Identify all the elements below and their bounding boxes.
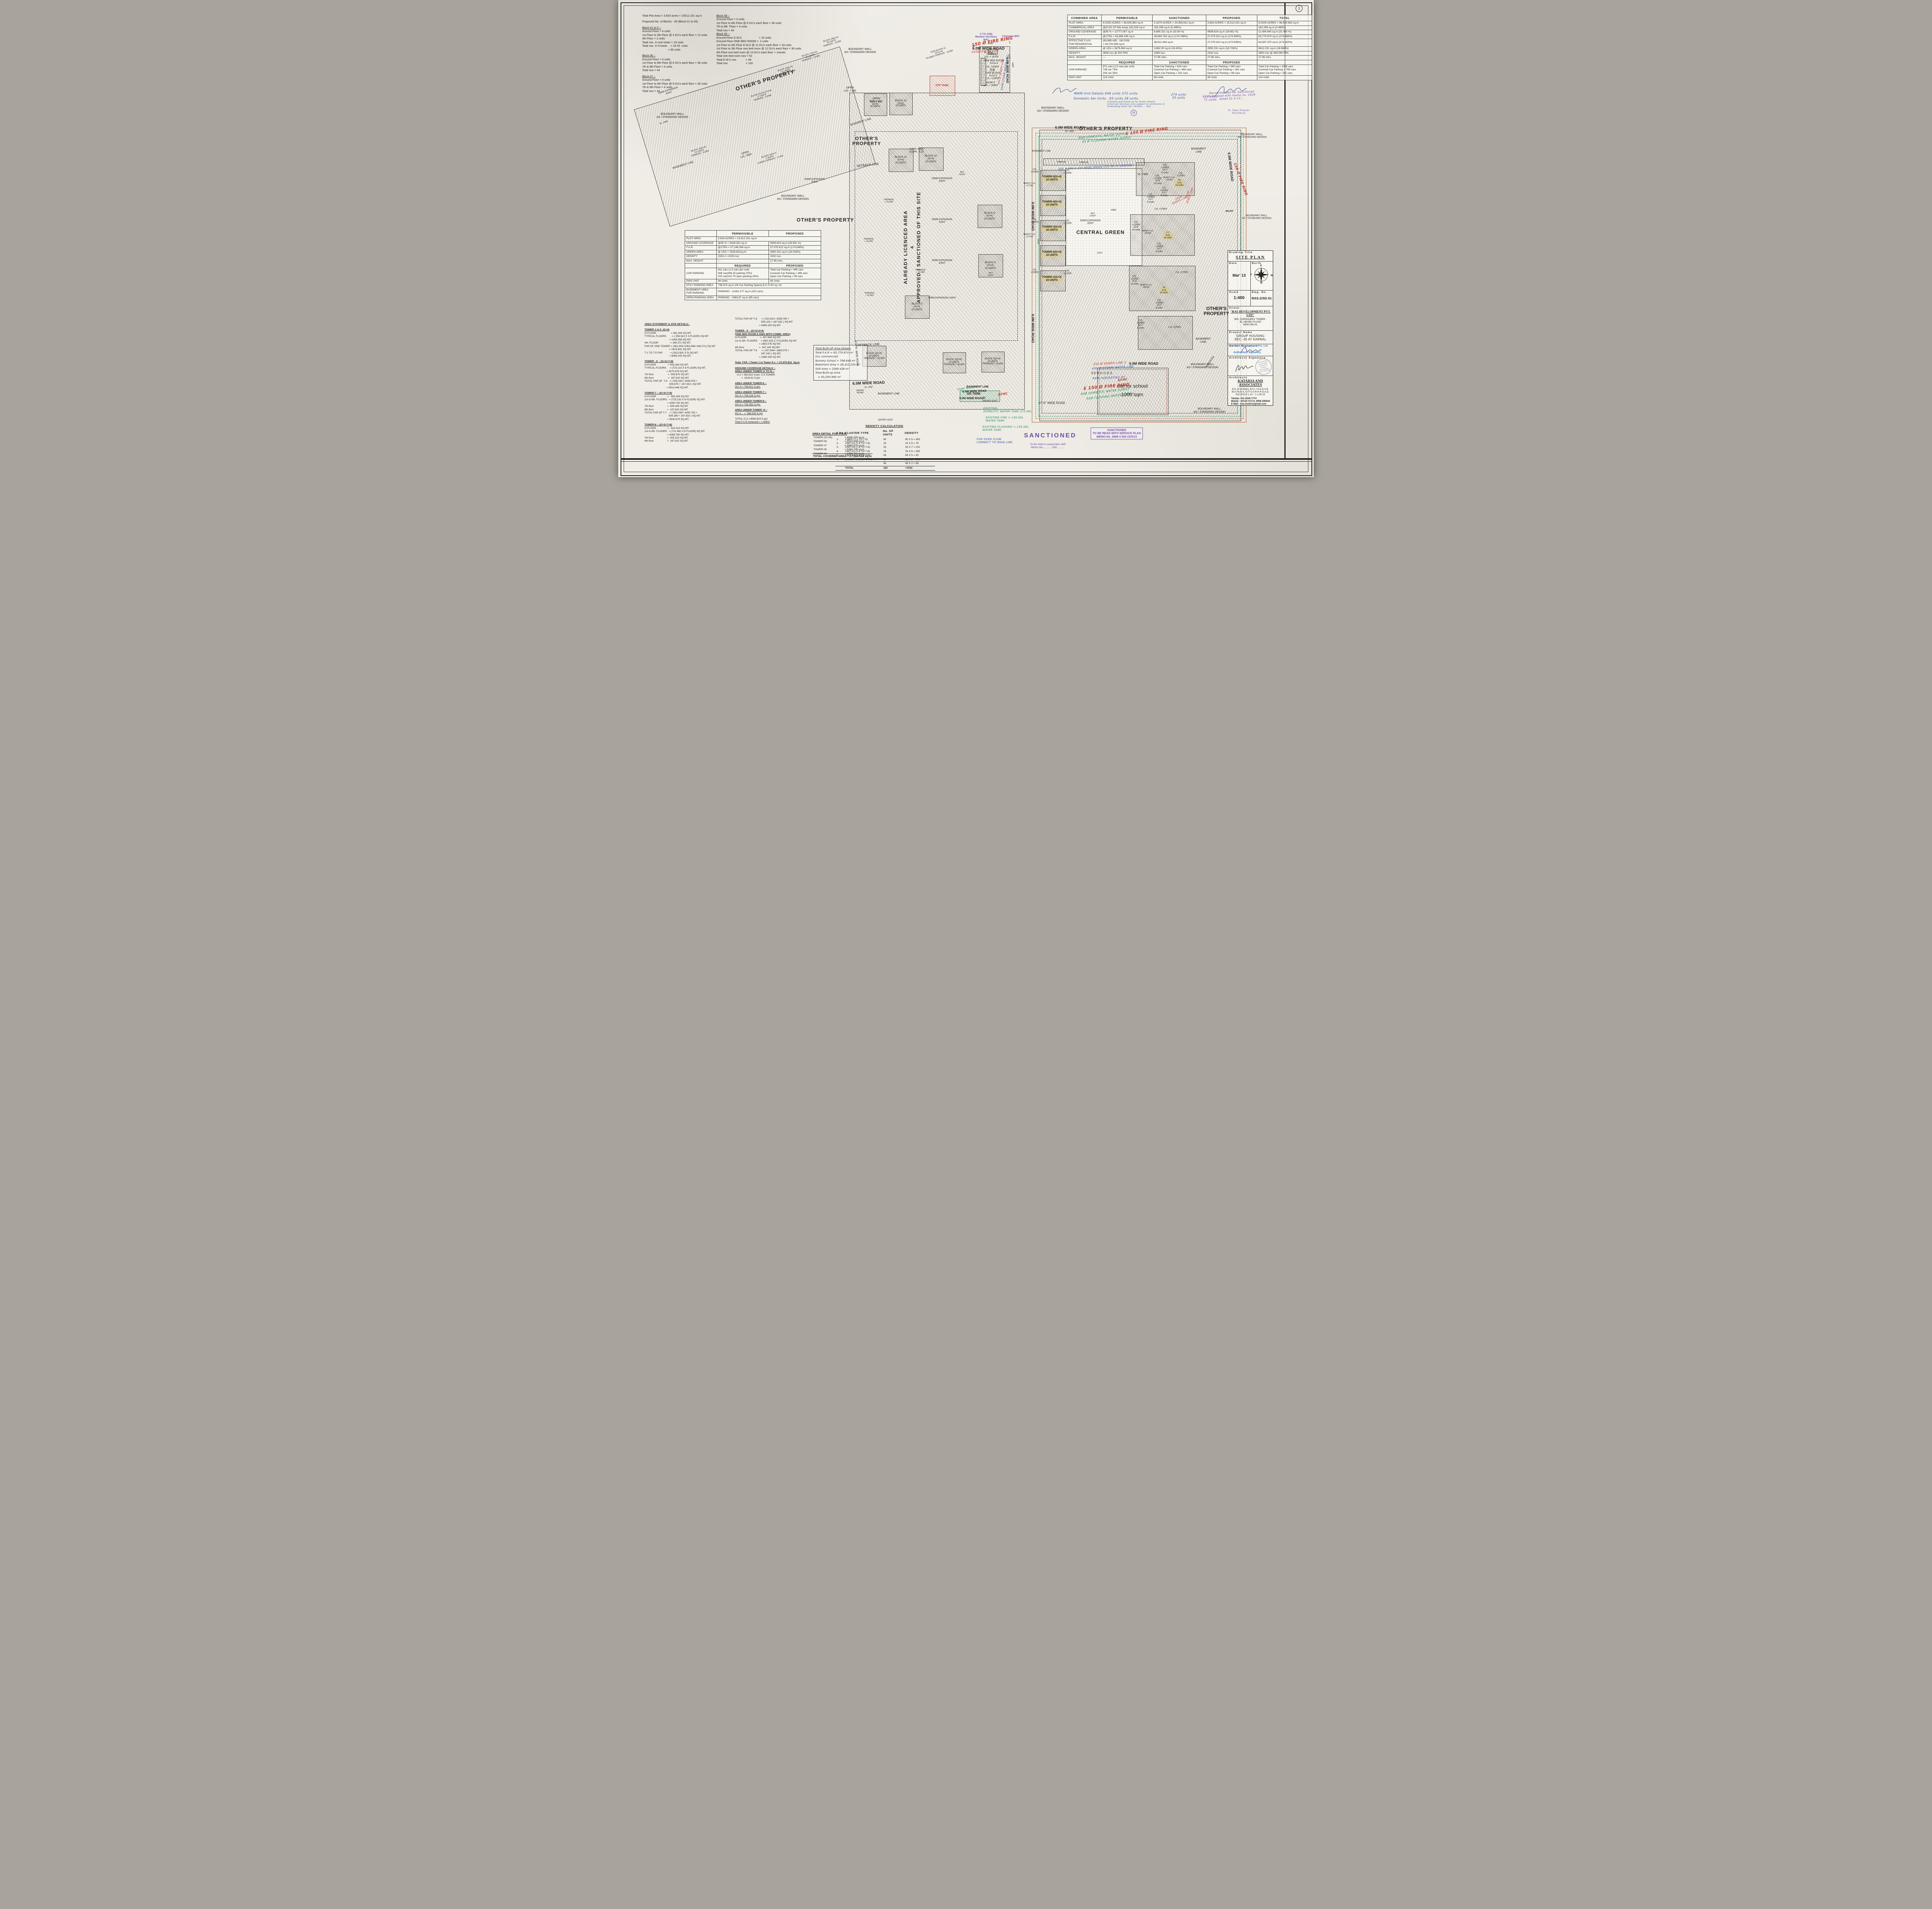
plan-label: RH-PIT	[1226, 211, 1233, 213]
plan-label: BLOCK 12 (G+4) 20 UNITS	[870, 100, 881, 108]
plan-label: OTHER'S PROPERTY	[852, 136, 881, 147]
plan-label: MUMTY LVL + 15650	[984, 82, 998, 87]
plan-label: To be read in conjunction with Memo No..…	[1030, 443, 1066, 449]
plan-label: TOWER-1(G+4) 18 UNITS	[1041, 276, 1062, 282]
plan-label: EXISTING FIRE = 150.0KL WATER TANK	[986, 416, 1024, 423]
plan-label: LVL +12900	[986, 77, 999, 80]
plan-label: LVL +24900 G+7 8 units	[1155, 243, 1163, 253]
plan-label: FOR OVER FLOW CONNECT TO MAIN LINE	[977, 438, 1013, 444]
plan-label: BOUNDARY WALL AS / STANDARD DESIGN	[1237, 133, 1267, 139]
plan-label: BASEMENT LINE	[1032, 150, 1051, 153]
plan-label: APPROVED / SANCTIONED OF THIS SITE	[916, 192, 921, 303]
plan-label: lvl. +600	[1138, 173, 1148, 176]
plan-label: 50MM EXPANSION JOINT	[1080, 219, 1101, 224]
plan-label: SANCTIONED TO BE READ WITH SERVICE PLAN …	[1091, 427, 1143, 439]
plan-label: MUMTY LVL +17750	[1024, 233, 1036, 238]
plan-label: LVL +24900 G+7 8 units	[1160, 187, 1168, 197]
plan-label: 40865	[1111, 209, 1116, 212]
plan-label: 44882	[1011, 62, 1014, 68]
plan-label: LVL +24900 G+7 8 units	[1161, 164, 1169, 175]
plan-label: OTHER'S PROPERTY	[797, 218, 854, 223]
plan-label: MAIN Unit Details 646 units 372 units	[1074, 92, 1138, 96]
plan-label: MUMTY LVL +30750	[1163, 177, 1175, 181]
plan-label: LVL +21900 G+6 14 units	[1130, 275, 1138, 286]
plan-label: OTHER'S PROPERTY	[1204, 306, 1229, 317]
plan-label: OPEN LVL + 600	[844, 87, 856, 93]
plan-label: BOUNDARY WALL AS / STANDARD DESIGN	[1187, 363, 1218, 369]
plan-label: 150 Ø FIRE RING	[1233, 162, 1248, 196]
plan-label: BLOCK 10 (G+4) 20 UNITS	[925, 155, 937, 163]
plan-label: BLOCK 11 (G+4) 20 UNITS	[895, 156, 907, 164]
plan-label: 6.0M WIDE ROAD	[1227, 152, 1234, 182]
plan-label: 50MM EXPANSION JOINT	[928, 297, 956, 300]
plan-label: BLOCK 17(G+4) 21 UNITS TERRACE - 13,950	[800, 50, 820, 63]
plan-label: 6.0M WIDE ROAD	[852, 381, 885, 386]
plan-label: LVL +27900	[1175, 272, 1188, 274]
plan-label: BLOCK 6 (G+4) 20 UNITS	[985, 261, 996, 270]
plan-label: EWS BLOCK-11 (S+G+3) PLUMES TERRACE - 13…	[925, 45, 953, 60]
plan-label: LVL +27900	[1177, 172, 1185, 177]
plan-label: BLOCK 15 (S+G+3+4) 17 UNITS TERRACE - 13…	[751, 89, 773, 102]
plan-label: 280Ø SEWER LINE	[1170, 193, 1188, 206]
plan-label: Domestic Ser Units . 65 units 38 units	[1074, 97, 1138, 101]
plan-label: BOUNDARY WALL AS / STANDARD DESIGN	[1242, 214, 1271, 220]
plan-label: BLOCK 8 (G+4) 20 UNITS	[984, 212, 995, 220]
plan-label: BOUNDARY WALL AS / STANDARD DESIGN	[844, 48, 876, 54]
plan-label: 23114	[1097, 252, 1102, 255]
plan-label: BLOCK 5 (G+4) 20 UNITS	[912, 303, 923, 311]
plan-label: EXISTING FLUSHING = 150.0KL. WATER TANK	[983, 426, 1030, 432]
plan-label: SANCTIONED	[1024, 432, 1077, 439]
plan-label: 300 X 300 X 150 WIDE DRAIN COV WITH GRAT…	[1058, 164, 1133, 171]
plan-label: BLOCK 14(S+7) 7 UNITS LOWER TERRACE - 17…	[756, 150, 784, 165]
plan-label: BASEMENT LINE	[878, 393, 900, 396]
plan-label: BASEMENT LINE	[850, 117, 872, 127]
plan-label: LVL +27900	[1155, 208, 1167, 211]
plan-label: TOWER-4(G+4) 18 UNITS	[1041, 201, 1062, 207]
plan-labels-layer: 6.0M WIDE ROADlvl. +4506.0M WIDE ROAD6.0…	[618, 0, 1314, 477]
plan-label: ENTRY EXIT	[878, 418, 893, 421]
plan-label: OPEN LVL +600	[740, 150, 752, 159]
plan-label: L	[1009, 41, 1011, 44]
plan-label: 274 units 33 units	[1171, 93, 1186, 100]
plan-label: TOWER-3(G+4) 18 UNITS	[1041, 226, 1062, 232]
plan-label: CENTRAL GREEN	[1077, 230, 1125, 236]
plan-label: 50MM EXPANSION JOINT	[932, 259, 952, 264]
plan-label: BLOCK 3(G+4) 20 UNITS TERRACE + 15,950	[982, 358, 1003, 365]
plan-label: 2	[1296, 5, 1303, 12]
plan-label: 450 Ø STORM WATER LINE	[1092, 365, 1134, 371]
plan-label: LVL +27900	[1168, 326, 1181, 329]
plan-label: 50MM EXPANSION JOINT	[932, 218, 952, 223]
plan-label: 50MM EXPANSION JOINT	[804, 178, 825, 183]
plan-label: BLOCK 2(G+4) 20 UNITS TERRACE + 15,950	[944, 359, 964, 366]
plan-label: BOUNDARY WALL AS / STANDARD DESIGN	[656, 113, 688, 119]
plan-label: Chairman BPC	[1002, 35, 1020, 37]
plan-label: MUMTY LVL +30750	[1140, 284, 1152, 289]
plan-label: TOWER-2(G+4) 18 UNITS	[1041, 251, 1062, 257]
plan-label: LVL +21900 G+6 14 units	[1132, 221, 1140, 232]
plan-label: Recommended for Sanctioned to be read wi…	[1208, 90, 1255, 101]
plan-label: M	[1131, 110, 1137, 116]
plan-label: BLOCK 13 (G+4) 20 UNITS	[895, 100, 906, 107]
plan-label: BOUNDARY WALL AS / STANDARD DESIGN	[1194, 408, 1225, 414]
plan-label: LVL +15000	[1031, 218, 1039, 223]
plan-label: T-7 S+8 14 units	[1163, 232, 1172, 240]
plan-label: 50MM EXPANSION JOINT	[658, 87, 679, 97]
plan-label: MUMTY LVL + 18750	[985, 53, 998, 59]
plan-label: TERRACE + 15,950	[864, 238, 874, 243]
plan-label: SETBACK LINE	[857, 163, 879, 168]
plan-label: 47'-6" WIDE ROAD	[1039, 402, 1065, 405]
plan-label: &	[910, 246, 914, 248]
plan-label: BASEMENT LINE	[672, 161, 694, 170]
plan-label: EXISTING DOMESTIC WATER TANK 275.0KL	[983, 407, 1032, 413]
plan-label: 4 MTR. WIDE SLOPE - 1:10	[909, 148, 923, 153]
plan-label: LVL +21900 G+6 14 units	[1153, 175, 1162, 185]
plan-label: 13754	[1036, 239, 1039, 244]
plan-label: LVL +15000	[1031, 269, 1039, 274]
plan-label: ALREADY LICENCED AREA	[903, 211, 908, 284]
plan-label: 9.0M WIDE ROAD	[959, 397, 984, 400]
plan-label: EFHC	[998, 392, 1008, 397]
plan-label: BLOCK 18(G+4) 20 UNITS TERRACE - 13,950	[821, 36, 841, 48]
plan-label: Sr. Town Planner Panchkula	[1228, 109, 1250, 114]
plan-label: SETBACK LINE	[857, 343, 880, 347]
plan-label: TERRACE + 15,950	[864, 292, 874, 297]
plan-label: UG TANK	[967, 393, 981, 396]
plan-label: BASEMENT LINE	[1191, 148, 1206, 154]
plan-label: LVL +12000	[1064, 219, 1071, 224]
plan-label: BLOCK 13(G+4) 21 UNITS TERRACE - 13,950	[689, 145, 709, 158]
plan-label: T6 S+8 14 units	[1174, 179, 1184, 187]
plan-label: OTHER'S PROPERTY	[1079, 126, 1133, 131]
plan-label: SERVICES	[1091, 372, 1113, 376]
plan-label: lvl +450	[864, 386, 872, 389]
plan-label: LVL +24900 G+7 8 units	[1155, 299, 1163, 310]
plan-label: LVL +24900 G+7 8 units	[1137, 320, 1145, 330]
plan-label: LVL +12000	[1064, 270, 1071, 275]
plan-label: SKY LIGHT	[1090, 212, 1096, 217]
plan-label: BLOCK 1(G+4) 20 UNITS TERRACE + 15,950	[864, 352, 884, 360]
plan-label: T8 S+8 14 units	[1159, 287, 1168, 294]
plan-label: M	[983, 397, 986, 400]
plan-label: ramp up	[1057, 161, 1066, 164]
plan-label: TOWER-5(G+4) 18 UNITS	[1041, 175, 1062, 182]
site-plan-sheet: Total Plot Area = 3.833 acres = 15512.15…	[618, 0, 1314, 477]
plan-label: BOUNDARY WALL AS / STANDARD DESIGN	[1037, 107, 1069, 113]
plan-label: TERRACE + 15,950	[884, 199, 894, 203]
plan-label: MUMTY LVL +30750	[1142, 230, 1154, 235]
plan-label: BOUNDARY WALL AS / STANDARD DESIGN	[777, 195, 809, 201]
plan-label: C.T.P. (HQ) Member Secretary BPC	[975, 33, 997, 41]
plan-label: STP TANK	[935, 84, 949, 87]
plan-label: Checked and found ok for Public Health (…	[1107, 101, 1165, 108]
plan-label: M. +450	[1065, 131, 1074, 133]
plan-label: LVL +15000	[1031, 168, 1039, 173]
plan-label: ramp up	[1080, 161, 1088, 164]
plan-label: 50MM EXPANSION JOINT	[932, 177, 952, 182]
plan-label: GAURD ROOM	[856, 389, 864, 394]
plan-label: LVL +24900 G+7 8 units	[1147, 194, 1155, 204]
plan-label: MUMTY LVL +17750	[1024, 182, 1036, 187]
plan-label: BASEMENT LINE	[1196, 338, 1211, 344]
plan-label: 9.0M WIDE ROAD	[1031, 314, 1035, 343]
plan-label: 9.0M WIDE ROAD	[1031, 202, 1035, 231]
plan-label: M. +450	[660, 121, 668, 126]
plan-label: SKY LIGHT	[959, 171, 965, 176]
plan-label: SKY LIGHT	[988, 272, 994, 277]
